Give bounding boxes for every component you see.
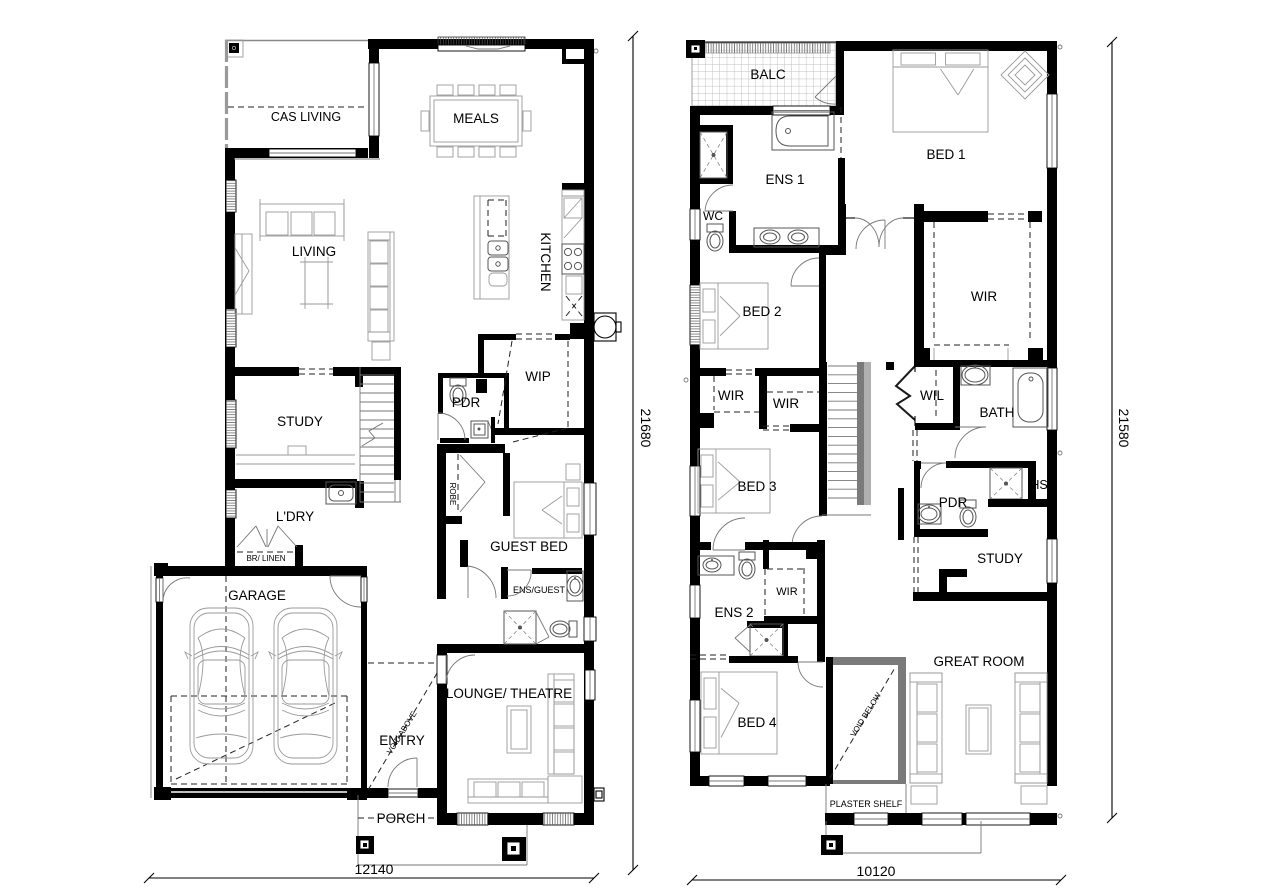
svg-text:ENS 2: ENS 2 [714,605,753,620]
svg-text:WC: WC [703,209,723,223]
svg-text:21580: 21580 [1116,409,1132,448]
svg-text:ENS/GUEST: ENS/GUEST [513,585,566,595]
svg-text:12140: 12140 [355,861,394,877]
svg-text:BR/ LINEN: BR/ LINEN [246,554,285,563]
svg-text:BATH: BATH [979,405,1014,420]
svg-text:CAS LIVING: CAS LIVING [271,110,341,124]
svg-text:LOUNGE/ THEATRE: LOUNGE/ THEATRE [446,686,572,701]
svg-text:BED 1: BED 1 [926,147,965,162]
svg-text:PORCH: PORCH [377,811,426,826]
svg-text:ENS 1: ENS 1 [765,172,804,187]
svg-text:PDR: PDR [939,495,968,510]
svg-text:GARAGE: GARAGE [228,588,286,603]
svg-text:21680: 21680 [638,409,654,448]
svg-text:MEALS: MEALS [453,111,499,126]
svg-text:KITCHEN: KITCHEN [538,232,553,291]
svg-text:WIL: WIL [920,388,944,403]
svg-text:GREAT ROOM: GREAT ROOM [933,654,1024,669]
svg-text:WIR: WIR [773,396,799,411]
svg-text:WIR: WIR [776,586,797,598]
svg-text:PDR: PDR [452,395,481,410]
svg-text:BED 3: BED 3 [737,479,776,494]
svg-text:WIR: WIR [718,388,744,403]
svg-text:WIR: WIR [971,289,997,304]
svg-text:STUDY: STUDY [277,414,323,429]
svg-text:ROBE: ROBE [448,483,457,506]
svg-text:PLASTER SHELF: PLASTER SHELF [830,799,903,809]
svg-text:LIVING: LIVING [292,244,336,259]
svg-text:10120: 10120 [857,863,896,879]
svg-text:GUEST BED: GUEST BED [490,539,568,554]
svg-text:WIP: WIP [525,369,551,384]
svg-text:STUDY: STUDY [977,551,1023,566]
svg-text:L'DRY: L'DRY [276,509,314,524]
svg-text:HS: HS [1030,478,1047,492]
svg-text:BED 2: BED 2 [742,304,781,319]
svg-text:BED 4: BED 4 [737,715,777,730]
svg-text:BALC: BALC [750,67,786,82]
